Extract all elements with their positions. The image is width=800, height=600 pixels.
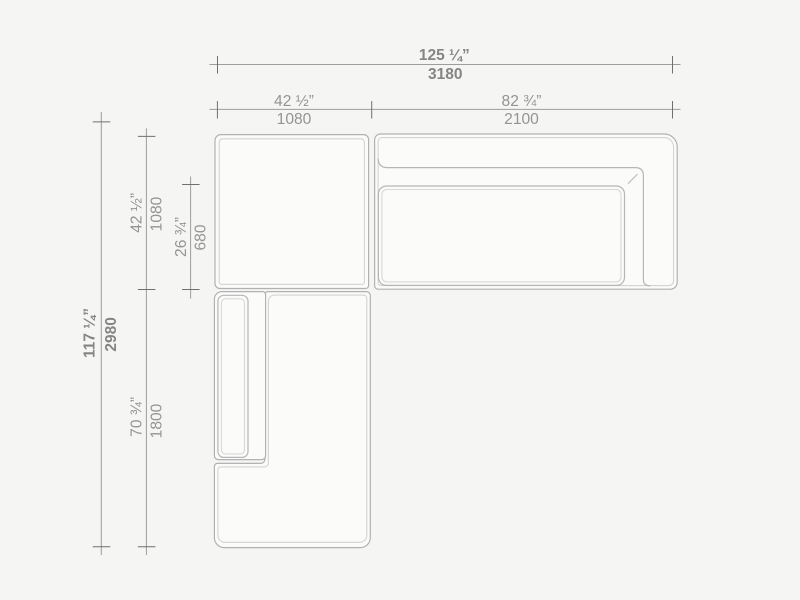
svg-text:70 ¾”: 70 ¾”: [128, 397, 145, 437]
svg-text:26 ¾”: 26 ¾”: [173, 217, 190, 257]
svg-text:1080: 1080: [277, 111, 312, 128]
svg-text:680: 680: [192, 224, 209, 250]
svg-text:42 ½”: 42 ½”: [128, 193, 145, 233]
svg-text:3180: 3180: [428, 66, 462, 83]
svg-text:1800: 1800: [149, 403, 166, 438]
svg-text:2100: 2100: [504, 111, 539, 128]
svg-text:125 ¼”: 125 ¼”: [419, 47, 470, 64]
svg-text:82 ¾”: 82 ¾”: [502, 93, 542, 110]
svg-text:117 ¼”: 117 ¼”: [82, 308, 99, 358]
svg-text:1080: 1080: [149, 196, 166, 231]
svg-text:2980: 2980: [103, 317, 120, 351]
svg-text:42 ½”: 42 ½”: [274, 93, 314, 110]
